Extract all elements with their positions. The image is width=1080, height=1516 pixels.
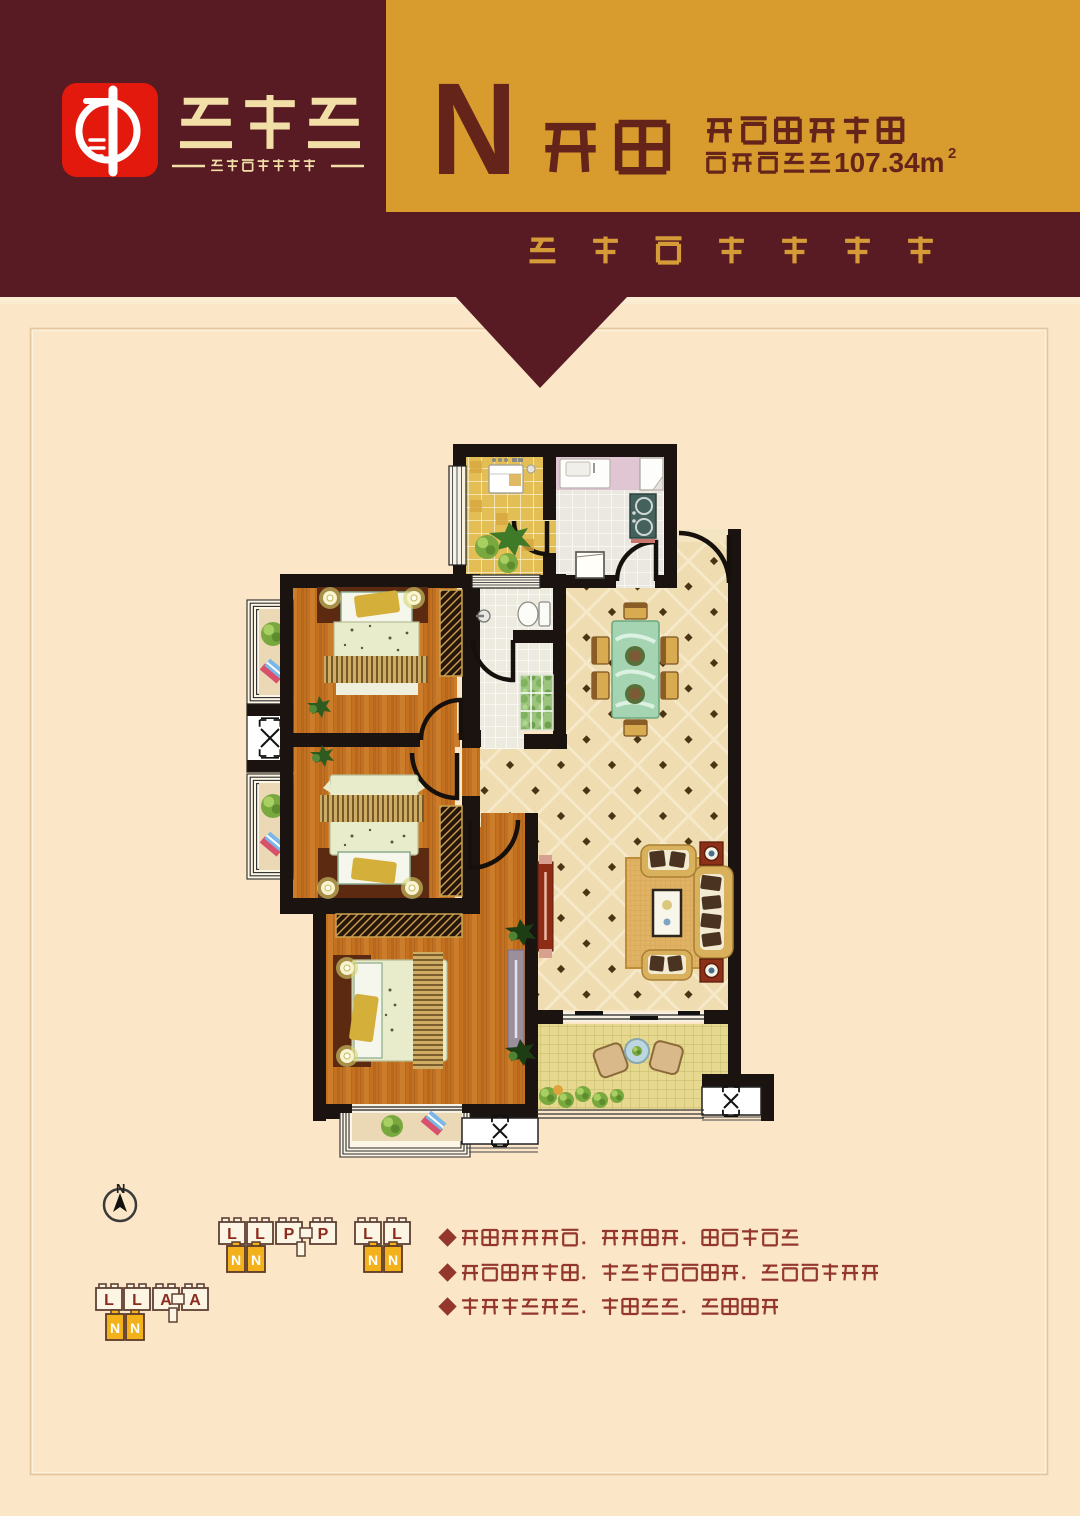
svg-text:N: N: [431, 55, 517, 202]
svg-text:N: N: [368, 1252, 378, 1268]
svg-text:A: A: [189, 1292, 201, 1309]
svg-text:N: N: [116, 1181, 125, 1196]
svg-text:A: A: [160, 1292, 172, 1309]
svg-text:P: P: [284, 1226, 295, 1243]
svg-text:N: N: [388, 1252, 398, 1268]
svg-text:107.34m: 107.34m: [834, 147, 945, 178]
svg-text:L: L: [104, 1292, 114, 1309]
svg-text:N: N: [130, 1320, 140, 1336]
svg-text:N: N: [231, 1252, 241, 1268]
svg-text:P: P: [318, 1226, 329, 1243]
svg-text:N: N: [251, 1252, 261, 1268]
svg-text:2: 2: [948, 145, 956, 162]
svg-text:L: L: [255, 1226, 265, 1243]
svg-text:L: L: [363, 1226, 373, 1243]
svg-text:N: N: [110, 1320, 120, 1336]
svg-text:L: L: [392, 1226, 402, 1243]
svg-text:L: L: [227, 1226, 237, 1243]
svg-text:L: L: [132, 1292, 142, 1309]
